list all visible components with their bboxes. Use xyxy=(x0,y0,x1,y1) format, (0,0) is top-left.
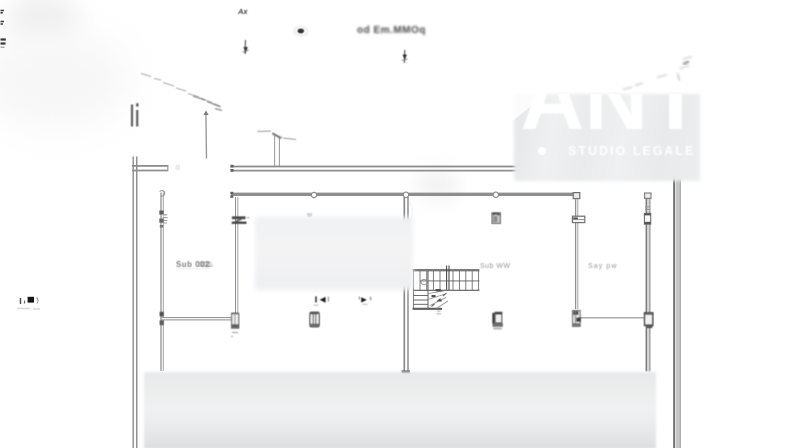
svg-text:Ax: Ax xyxy=(237,7,248,16)
svg-text:Sub 002: Sub 002 xyxy=(176,260,210,269)
svg-text:Say pw: Say pw xyxy=(588,263,618,270)
svg-text:Sub WW: Sub WW xyxy=(480,263,511,270)
svg-text:od Em.MMOq: od Em.MMOq xyxy=(357,25,426,36)
